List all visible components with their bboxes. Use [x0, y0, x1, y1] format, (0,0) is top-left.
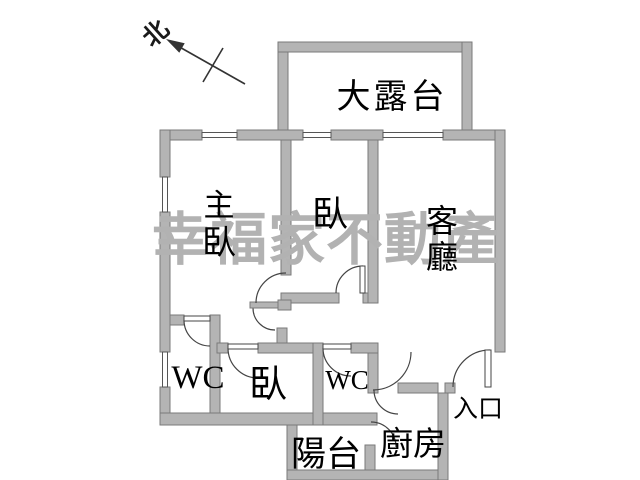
door-arc-hallway	[253, 308, 275, 330]
kitchen-wall-top	[398, 383, 438, 393]
label-living-room-char2: 廳	[426, 239, 458, 275]
north-compass: 北	[137, 15, 245, 84]
wall-bedroom3-top-left	[217, 343, 228, 353]
window-left-1	[163, 177, 168, 212]
window-top-1	[202, 133, 237, 138]
label-balcony: 陽台	[291, 435, 361, 474]
balcony-kitchen-divider	[365, 445, 375, 470]
label-kitchen: 廚房	[380, 426, 446, 463]
floor-plan-page: 幸福家不動產 大露台 主 臥 臥 客 廳 WC 臥 WC 陽台 廚房 入口	[0, 0, 640, 480]
door-leaf-wc-left	[184, 316, 210, 321]
compass-cross-line	[203, 48, 223, 82]
label-bedroom-middle: 臥	[312, 194, 348, 234]
terrace-wall-left	[278, 42, 288, 135]
label-terrace: 大露台	[337, 78, 448, 116]
terrace-wall-right	[462, 42, 472, 135]
bottom-wall	[160, 413, 377, 425]
window-left-2	[163, 352, 168, 387]
wall-hall-stub-lower	[277, 328, 287, 344]
label-wc-left: WC	[171, 360, 224, 396]
top-wall-seg-2	[237, 130, 303, 140]
label-master-bedroom-char1: 主	[204, 188, 235, 223]
door-leaf-entrance	[485, 350, 491, 387]
wall-wc-left-top-stub	[170, 315, 184, 325]
door-leaf-hallway	[250, 302, 278, 308]
door-leaf-bedroom2	[360, 266, 365, 293]
label-master-bedroom-char2: 臥	[202, 225, 236, 262]
label-living-room-char1: 客	[426, 203, 458, 239]
door-leaf-wc-right	[323, 344, 351, 349]
compass-north-label: 北	[137, 15, 174, 53]
label-entrance: 入口	[453, 396, 503, 423]
door-arc-entrance	[453, 350, 490, 387]
compass-arrowhead-icon	[166, 39, 185, 53]
window-top-2	[303, 133, 331, 138]
window-top-3	[383, 133, 443, 138]
wall-wc-right-top-right	[351, 343, 378, 353]
wall-bedroom3-top-right	[258, 343, 313, 353]
wall-hall-stub-upper	[278, 300, 291, 310]
label-bedroom-lower: 臥	[249, 364, 287, 406]
door-arc-kitchen	[374, 390, 398, 414]
terrace-wall-top	[278, 42, 472, 52]
wall-bedroom3-wc-divider	[313, 343, 323, 425]
compass-shaft-line	[176, 45, 245, 84]
door-leaf-bedroom3	[228, 344, 258, 349]
left-wall-seg-1	[160, 130, 170, 177]
floor-plan-svg: 幸福家不動產 大露台 主 臥 臥 客 廳 WC 臥 WC 陽台 廚房 入口	[0, 0, 640, 480]
top-wall-seg-3	[331, 130, 383, 140]
door-arc-wc-left	[184, 320, 210, 346]
label-wc-right: WC	[325, 365, 369, 395]
